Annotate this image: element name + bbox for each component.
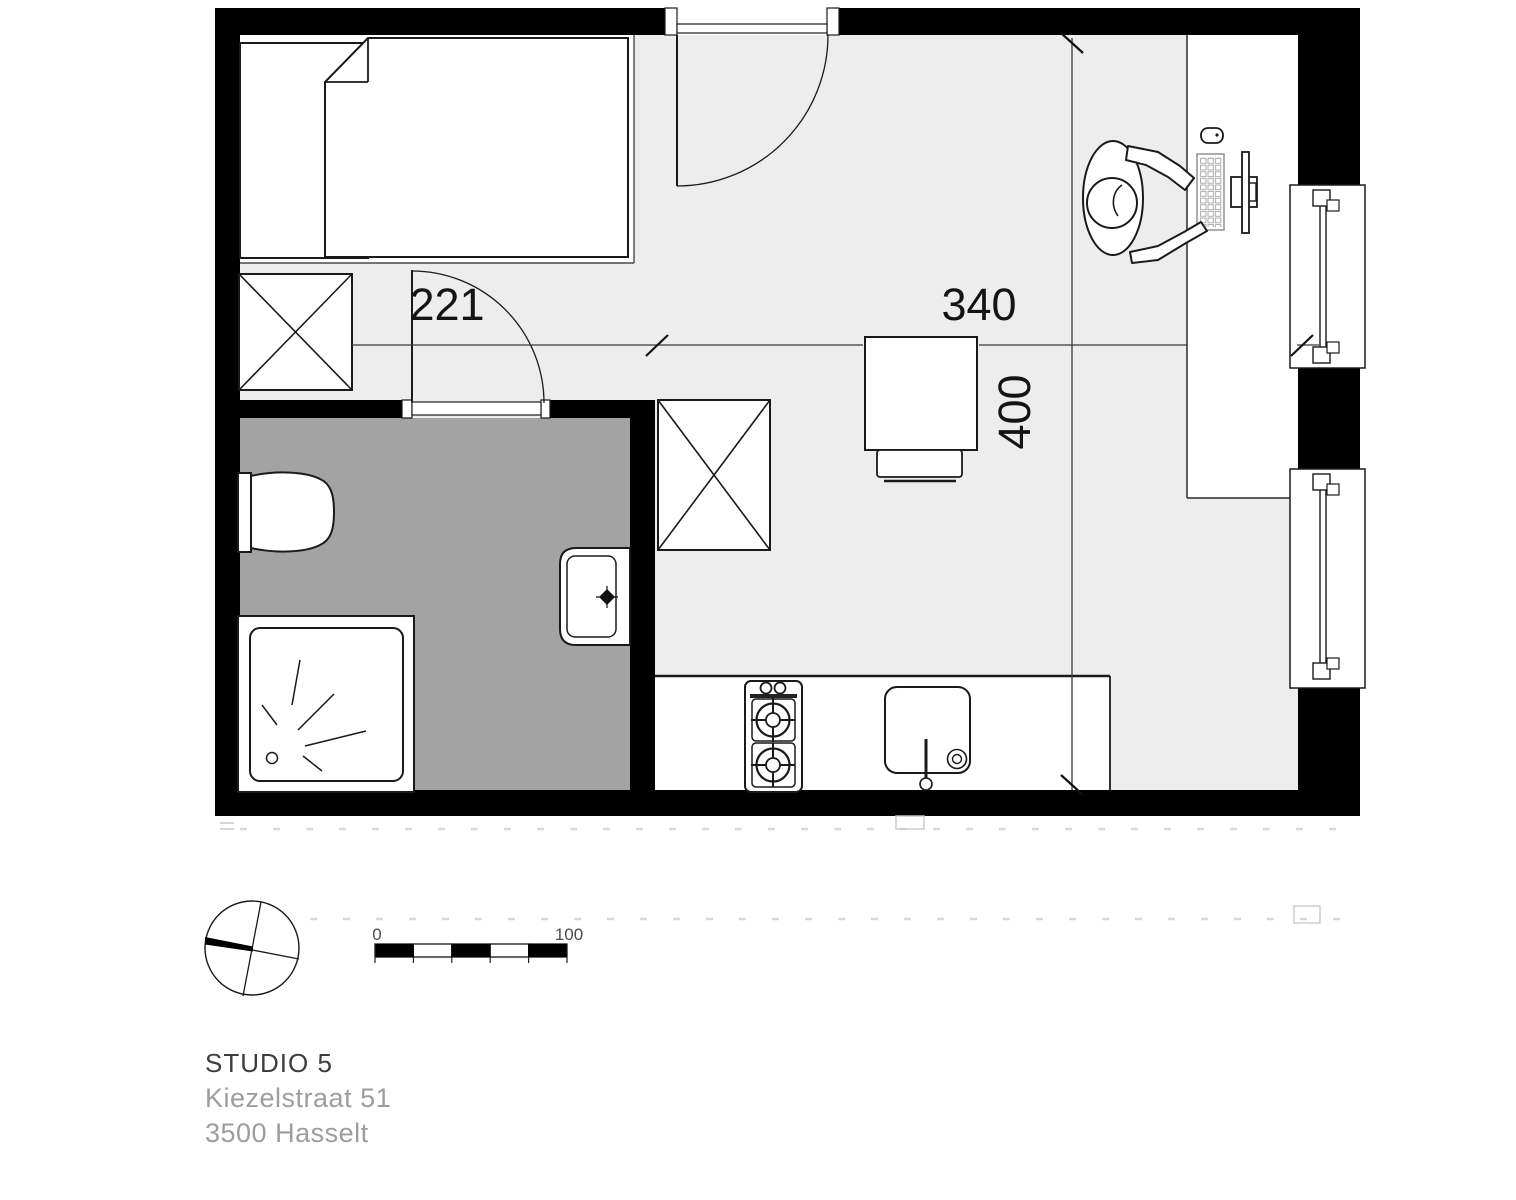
- address-street: Kiezelstraat 51: [205, 1081, 391, 1116]
- plan-title: STUDIO 5: [205, 1046, 391, 1081]
- floorplan-drawing: 221 340 400 0 100: [0, 0, 1516, 1200]
- dimension-label-221: 221: [409, 279, 484, 330]
- scale-bar: 0 100: [372, 925, 583, 963]
- kitchen-counter: [655, 676, 1110, 790]
- scale-end-label: 100: [555, 925, 583, 944]
- wardrobe-icon: [658, 400, 770, 550]
- mouse-icon: [1201, 128, 1223, 143]
- shower-icon: [238, 616, 414, 792]
- north-arrow-icon: [205, 901, 299, 996]
- dimension-label-400: 400: [989, 374, 1040, 449]
- bed-icon: [240, 38, 628, 258]
- toilet-icon: [238, 472, 334, 552]
- floorplan-page: 221 340 400 0 100 STUDIO: [0, 0, 1516, 1200]
- scale-start-label: 0: [372, 925, 381, 944]
- address-city: 3500 Hasselt: [205, 1116, 391, 1151]
- desk-area: [1187, 35, 1298, 498]
- window-icon: [1290, 185, 1365, 368]
- stove-icon: [745, 681, 802, 792]
- title-block: STUDIO 5 Kiezelstraat 51 3500 Hasselt: [205, 1046, 391, 1151]
- print-artifacts: [220, 816, 1360, 923]
- wardrobe-icon: [239, 274, 352, 390]
- dimension-label-340: 340: [941, 279, 1016, 330]
- table-icon: [865, 337, 977, 450]
- washbasin-icon: [560, 548, 630, 645]
- keyboard-icon: [1197, 154, 1224, 230]
- window-icon: [1290, 469, 1365, 688]
- chair-icon: [877, 450, 962, 481]
